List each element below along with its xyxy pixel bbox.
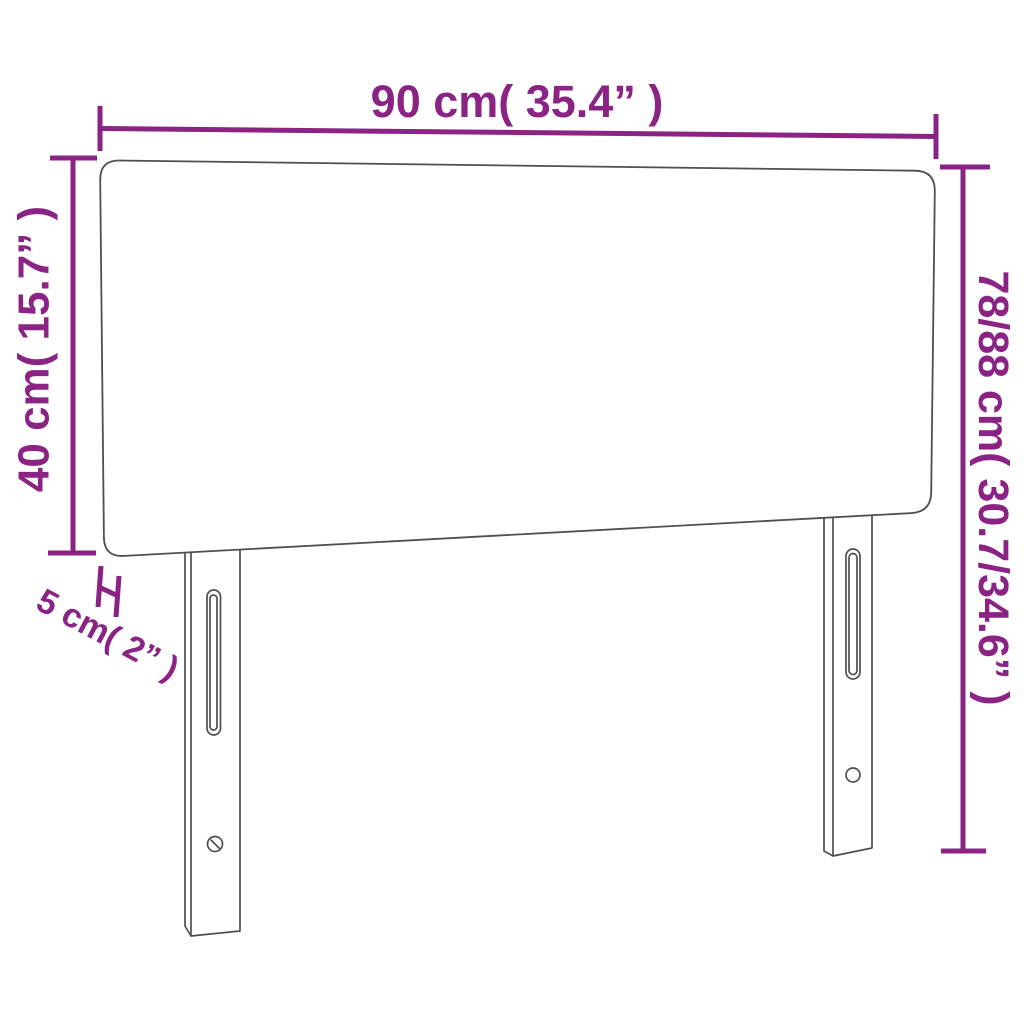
right-leg-front-face — [833, 510, 872, 856]
right-leg — [824, 510, 872, 856]
headboard-panel — [100, 160, 935, 555]
headboard-dimension-diagram: 90 cm( 35.4” ) 40 cm( 15.7” ) 78/88 cm( … — [0, 0, 1024, 1024]
thickness-dimension-label: 5 cm( 2” ) — [30, 582, 185, 688]
diagram-canvas: 90 cm( 35.4” ) 40 cm( 15.7” ) 78/88 cm( … — [0, 0, 1024, 1024]
left-leg — [185, 545, 240, 936]
width-dimension-line — [100, 129, 936, 137]
panel-height-dimension-label: 40 cm( 15.7” ) — [9, 206, 58, 492]
total-height-dimension-label: 78/88 cm( 30.7/34.6” ) — [969, 270, 1017, 705]
right-leg-side-face — [824, 513, 833, 856]
left-leg-side-face — [185, 548, 191, 936]
thickness-dimension: 5 cm( 2” ) — [30, 566, 185, 688]
width-dimension: 90 cm( 35.4” ) — [100, 76, 936, 159]
width-dimension-label: 90 cm( 35.4” ) — [371, 76, 664, 127]
left-leg-front-face — [191, 545, 240, 936]
panel-height-dimension: 40 cm( 15.7” ) — [9, 158, 97, 553]
thickness-dimension-bar — [99, 587, 118, 596]
total-height-dimension: 78/88 cm( 30.7/34.6” ) — [940, 167, 1017, 851]
